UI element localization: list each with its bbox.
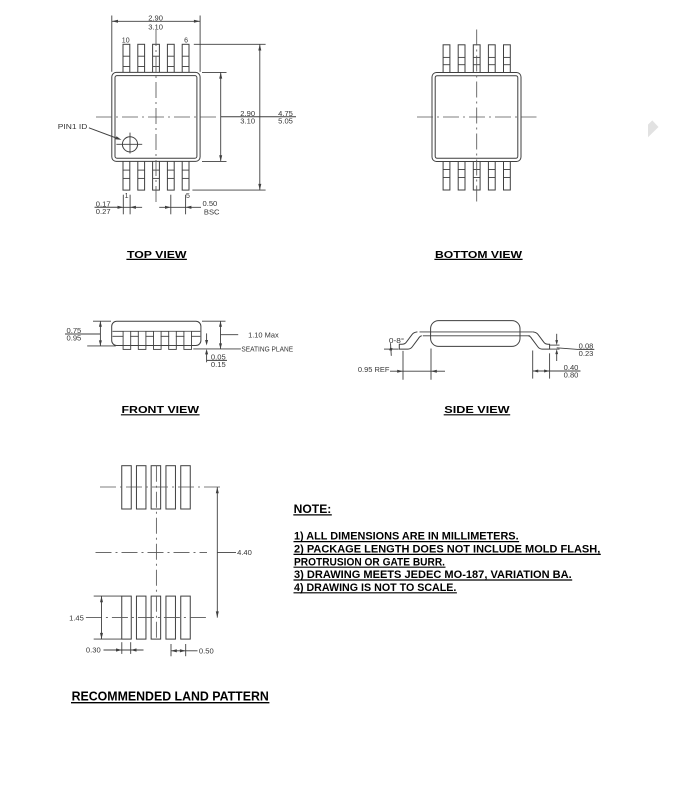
svg-text:5: 5 xyxy=(186,193,190,200)
svg-text:0.95 REF: 0.95 REF xyxy=(358,365,390,374)
svg-text:3.10: 3.10 xyxy=(240,117,255,126)
svg-text:0.30: 0.30 xyxy=(86,646,101,655)
svg-text:NOTE:: NOTE: xyxy=(294,502,332,516)
svg-text:2.90: 2.90 xyxy=(148,14,163,23)
svg-text:0.80: 0.80 xyxy=(564,371,579,380)
svg-text:0.50: 0.50 xyxy=(199,647,214,656)
svg-text:BSC: BSC xyxy=(204,207,220,216)
svg-text:1: 1 xyxy=(125,193,129,200)
svg-text:SEATING PLANE: SEATING PLANE xyxy=(241,344,293,353)
svg-text:6: 6 xyxy=(184,38,188,45)
svg-text:10: 10 xyxy=(122,38,130,45)
svg-text:5.05: 5.05 xyxy=(278,117,293,126)
svg-text:4.40: 4.40 xyxy=(237,548,252,557)
svg-text:2) PACKAGE LENGTH DOES NOT INC: 2) PACKAGE LENGTH DOES NOT INCLUDE MOLD … xyxy=(294,544,600,556)
svg-text:3.10: 3.10 xyxy=(148,22,163,31)
svg-text:4) DRAWING IS NOT TO SCALE.: 4) DRAWING IS NOT TO SCALE. xyxy=(294,582,456,594)
svg-text:PROTRUSION OR GATE BURR.: PROTRUSION OR GATE BURR. xyxy=(294,556,445,568)
svg-text:1.10 Max: 1.10 Max xyxy=(248,330,279,339)
svg-text:RECOMMENDED LAND PATTERN: RECOMMENDED LAND PATTERN xyxy=(72,689,269,703)
svg-text:1) ALL DIMENSIONS ARE IN MILLI: 1) ALL DIMENSIONS ARE IN MILLIMETERS. xyxy=(294,531,519,543)
svg-text:PIN1 ID: PIN1 ID xyxy=(58,122,88,131)
svg-text:0-8°: 0-8° xyxy=(389,336,404,345)
svg-text:0.95: 0.95 xyxy=(67,334,82,343)
svg-text:0.15: 0.15 xyxy=(211,360,226,369)
svg-text:1.45: 1.45 xyxy=(69,613,84,622)
svg-text:3) DRAWING MEETS JEDEC MO-187,: 3) DRAWING MEETS JEDEC MO-187, VARIATION… xyxy=(294,569,572,581)
svg-text:0.23: 0.23 xyxy=(579,349,594,358)
svg-text:0.27: 0.27 xyxy=(96,207,111,216)
